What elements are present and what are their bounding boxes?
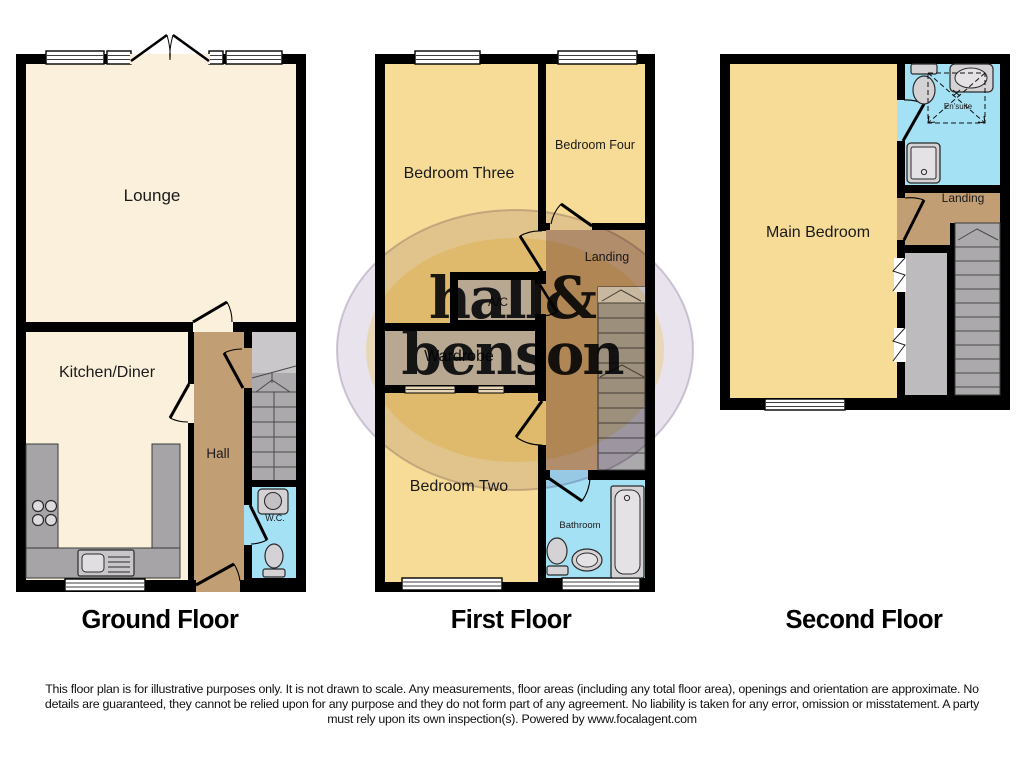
room-label-hall: Hall <box>206 446 229 461</box>
toilet-icon <box>547 538 568 575</box>
window-icon <box>765 399 845 410</box>
disclaimer-line-1: This floor plan is for illustrative purp… <box>0 682 1024 697</box>
stairs-icon <box>955 223 1000 395</box>
floor-title-second: Second Floor <box>786 606 944 634</box>
agency-watermark: hall& benson <box>337 210 693 490</box>
landing-eaves-wall <box>897 245 950 253</box>
room-label-wc: W.C. <box>265 513 285 523</box>
disclaimer-line-2: details are guaranteed, they cannot be r… <box>0 697 1024 712</box>
toilet-icon <box>263 544 285 577</box>
disclaimer-text: This floor plan is for illustrative purp… <box>0 682 1024 727</box>
bath-icon <box>611 486 644 578</box>
basin-icon <box>950 64 993 92</box>
eaves-storage <box>905 253 947 395</box>
room-label-bedroom-four: Bedroom Four <box>555 138 635 152</box>
basin-icon <box>258 489 288 514</box>
second-floor-plan: Main Bedroom En'suite Landing <box>720 54 1010 410</box>
room-label-main-bedroom: Main Bedroom <box>766 224 870 241</box>
watermark-line2: benson <box>401 320 623 388</box>
room-label-ensuite: En'suite <box>944 102 973 111</box>
floorplan-canvas: Lounge Kitchen/Diner Hall W.C. <box>0 0 1024 768</box>
sink-icon <box>78 550 134 576</box>
basin-icon <box>572 549 602 571</box>
french-door-icon <box>130 35 210 64</box>
shower-icon <box>907 143 940 183</box>
room-label-bedroom-three: Bedroom Three <box>404 165 515 182</box>
floorplan-page: Lounge Kitchen/Diner Hall W.C. <box>0 0 1024 768</box>
ground-floor-plan: Lounge Kitchen/Diner Hall W.C. <box>16 35 306 592</box>
room-label-kitchen: Kitchen/Diner <box>59 364 156 381</box>
room-label-landing-second: Landing <box>942 191 985 205</box>
room-label-lounge: Lounge <box>124 186 181 205</box>
toilet-icon <box>911 64 937 104</box>
disclaimer-line-3: must rely upon its own inspection(s). Po… <box>0 712 1024 727</box>
floor-title-first: First Floor <box>451 606 572 634</box>
stairs-landing-area <box>252 332 296 373</box>
floor-title-ground: Ground Floor <box>82 606 239 634</box>
room-label-bathroom: Bathroom <box>559 520 600 531</box>
